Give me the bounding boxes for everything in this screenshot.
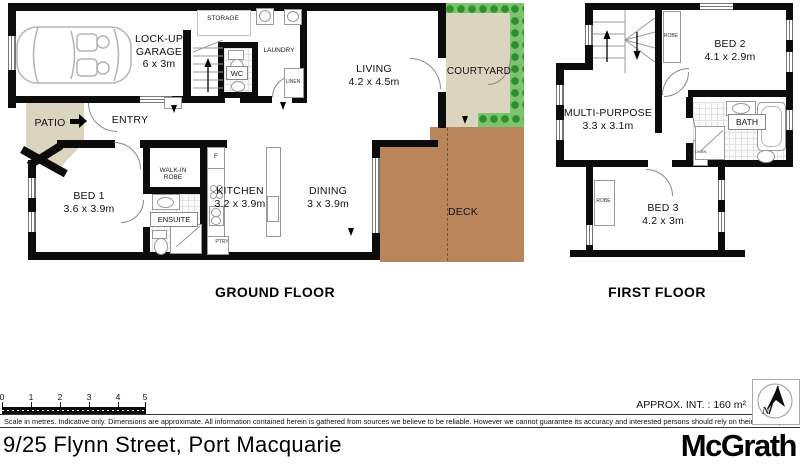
wall-segment: [655, 90, 662, 97]
wall-segment: [372, 147, 380, 158]
toilet-icon: [154, 238, 168, 255]
basin-icon: [732, 103, 750, 114]
room-label-linen-g: LINEN: [284, 79, 302, 85]
scale-number: 2: [55, 392, 65, 402]
stairs-ground: [193, 40, 223, 98]
wall-segment: [438, 3, 446, 58]
entry-arrow-icon: [171, 105, 177, 113]
wall-segment: [28, 232, 36, 260]
window: [718, 180, 725, 200]
room-label-patio: PATIO: [30, 117, 70, 130]
room-dims: 3.3 x 3.1m: [558, 120, 658, 133]
wall-segment: [688, 90, 793, 97]
wall-segment: [28, 252, 380, 260]
dining-stacker-door: [372, 158, 380, 233]
car-icon: [14, 18, 136, 92]
room-label-wir: WALK-IN ROBE: [151, 167, 195, 182]
room-label-wc: WC: [226, 66, 248, 80]
window: [28, 178, 36, 198]
wall-segment: [140, 140, 207, 148]
entry-arrow-icon: [462, 116, 468, 124]
wall-segment: [143, 187, 207, 194]
wall-segment: [28, 198, 36, 212]
scale-number: 4: [113, 392, 123, 402]
wall-segment: [556, 160, 648, 167]
wall-segment: [786, 40, 793, 52]
room-label-pantry: PTRY: [212, 239, 232, 245]
room-label-bed3: BED 3 4.2 x 3m: [626, 202, 700, 227]
room-name: MULTI-PURPOSE: [558, 107, 658, 120]
first-floor-title: FIRST FLOOR: [557, 284, 757, 300]
room-name: BED 1: [52, 190, 126, 203]
room-label-bed1: BED 1 3.6 x 3.9m: [52, 190, 126, 215]
window: [718, 212, 725, 232]
room-dims: 4.2 x 4.5m: [334, 76, 414, 89]
room-name: DINING: [292, 185, 364, 198]
mcgrath-logo: McGrath: [681, 428, 796, 464]
patio-arrow-head-icon: [79, 114, 87, 128]
door-arc: [646, 169, 673, 196]
disclaimer-text: Scale in metres. Indicative only. Dimens…: [0, 414, 800, 428]
compass-box: N: [752, 379, 800, 425]
room-label-bed2: BED 2 4.1 x 2.9m: [694, 38, 766, 63]
deck-area: [430, 127, 524, 262]
washing-machine-drum: [259, 10, 271, 22]
room-name: LOCK-UP GARAGE: [122, 33, 196, 58]
room-label-courtyard: COURTYARD: [441, 66, 517, 78]
room-dims: 3.2 x 3.9m: [206, 198, 274, 211]
room-label-laundry: LAUNDRY: [258, 47, 300, 54]
door-arc: [114, 142, 141, 169]
window: [586, 225, 593, 245]
sink-bowl: [211, 216, 221, 225]
wall-segment: [143, 227, 150, 252]
scale-bar-dots: [2, 410, 146, 411]
window: [786, 52, 793, 72]
room-name: KITCHEN: [206, 185, 274, 198]
room-name: BED 3: [626, 202, 700, 215]
compass-icon: N: [753, 380, 797, 422]
room-label-entry: ENTRY: [108, 114, 152, 127]
room-label-garage: LOCK-UP GARAGE 6 x 3m: [122, 33, 196, 71]
approx-internal-area: APPROX. INT. : 160 m²: [636, 399, 746, 411]
room-label-linen-f: LINEN: [694, 149, 707, 154]
wall-segment: [733, 3, 793, 10]
wall-segment: [585, 3, 593, 25]
room-dims: 4.2 x 3m: [626, 215, 700, 228]
room-label-fridge: F: [211, 153, 221, 160]
stairs-first: [593, 10, 655, 73]
wall-segment: [8, 96, 140, 103]
property-address: 9/25 Flynn Street, Port Macquarie: [3, 432, 342, 458]
wall-segment: [718, 232, 725, 257]
window: [556, 85, 564, 105]
patio-arrow-icon: [70, 119, 79, 124]
laundry-tub-bowl: [287, 11, 299, 22]
room-label-living: LIVING 4.2 x 4.5m: [334, 63, 414, 88]
room-label-ensuite: ENSUITE: [150, 212, 198, 227]
room-label-robe3: ROBE: [595, 198, 612, 204]
scale-number: 1: [26, 392, 36, 402]
wall-segment: [57, 140, 115, 148]
ground-floor-title: GROUND FLOOR: [175, 284, 375, 300]
room-label-dining: DINING 3 x 3.9m: [292, 185, 364, 210]
wall-segment: [556, 63, 564, 85]
room-name: BED 2: [694, 38, 766, 51]
wall-segment: [585, 3, 700, 10]
wall-segment: [786, 10, 793, 20]
wall-segment: [655, 10, 662, 70]
scale-number: 5: [140, 392, 150, 402]
window: [786, 20, 793, 40]
room-label-kitchen: KITCHEN 3.2 x 3.9m: [206, 185, 274, 210]
wall-segment: [718, 167, 725, 180]
wall-segment: [372, 140, 438, 147]
room-dims: 6 x 3m: [122, 58, 196, 71]
deck-dashed-line: [447, 128, 448, 261]
basin-icon: [157, 197, 174, 208]
room-dims: 4.1 x 2.9m: [694, 51, 766, 64]
compass-north-label: N: [761, 405, 770, 417]
room-label-multi: MULTI-PURPOSE 3.3 x 3.1m: [558, 107, 658, 132]
room-label-storage: STORAGE: [196, 15, 250, 22]
wall-segment: [438, 92, 446, 128]
courtyard-plants-corner: [478, 113, 524, 128]
entry-arrow-icon: [280, 102, 286, 110]
room-label-bath: BATH: [728, 114, 766, 130]
window: [585, 25, 593, 45]
wall-segment: [218, 92, 258, 98]
wall-segment: [686, 97, 693, 118]
room-dims: 3 x 3.9m: [292, 198, 364, 211]
scale-number: 0: [0, 392, 7, 402]
deck-area-extension: [380, 143, 432, 262]
scale-bar-rule: [2, 407, 146, 414]
wall-segment: [586, 167, 593, 225]
door-arc: [410, 58, 441, 89]
room-label-robe2: ROBE: [663, 33, 679, 39]
wall-segment: [143, 147, 150, 190]
entry-arrow-icon: [348, 228, 354, 236]
storage-shelf: [197, 10, 251, 36]
basin-icon: [231, 81, 245, 92]
toilet-icon: [757, 150, 775, 163]
wall-segment: [718, 200, 725, 212]
room-name: LIVING: [334, 63, 414, 76]
window: [700, 3, 733, 10]
window: [28, 212, 36, 232]
window: [786, 110, 793, 130]
room-dims: 3.6 x 3.9m: [52, 203, 126, 216]
scale-number: 3: [84, 392, 94, 402]
room-label-deck: DECK: [436, 206, 490, 219]
